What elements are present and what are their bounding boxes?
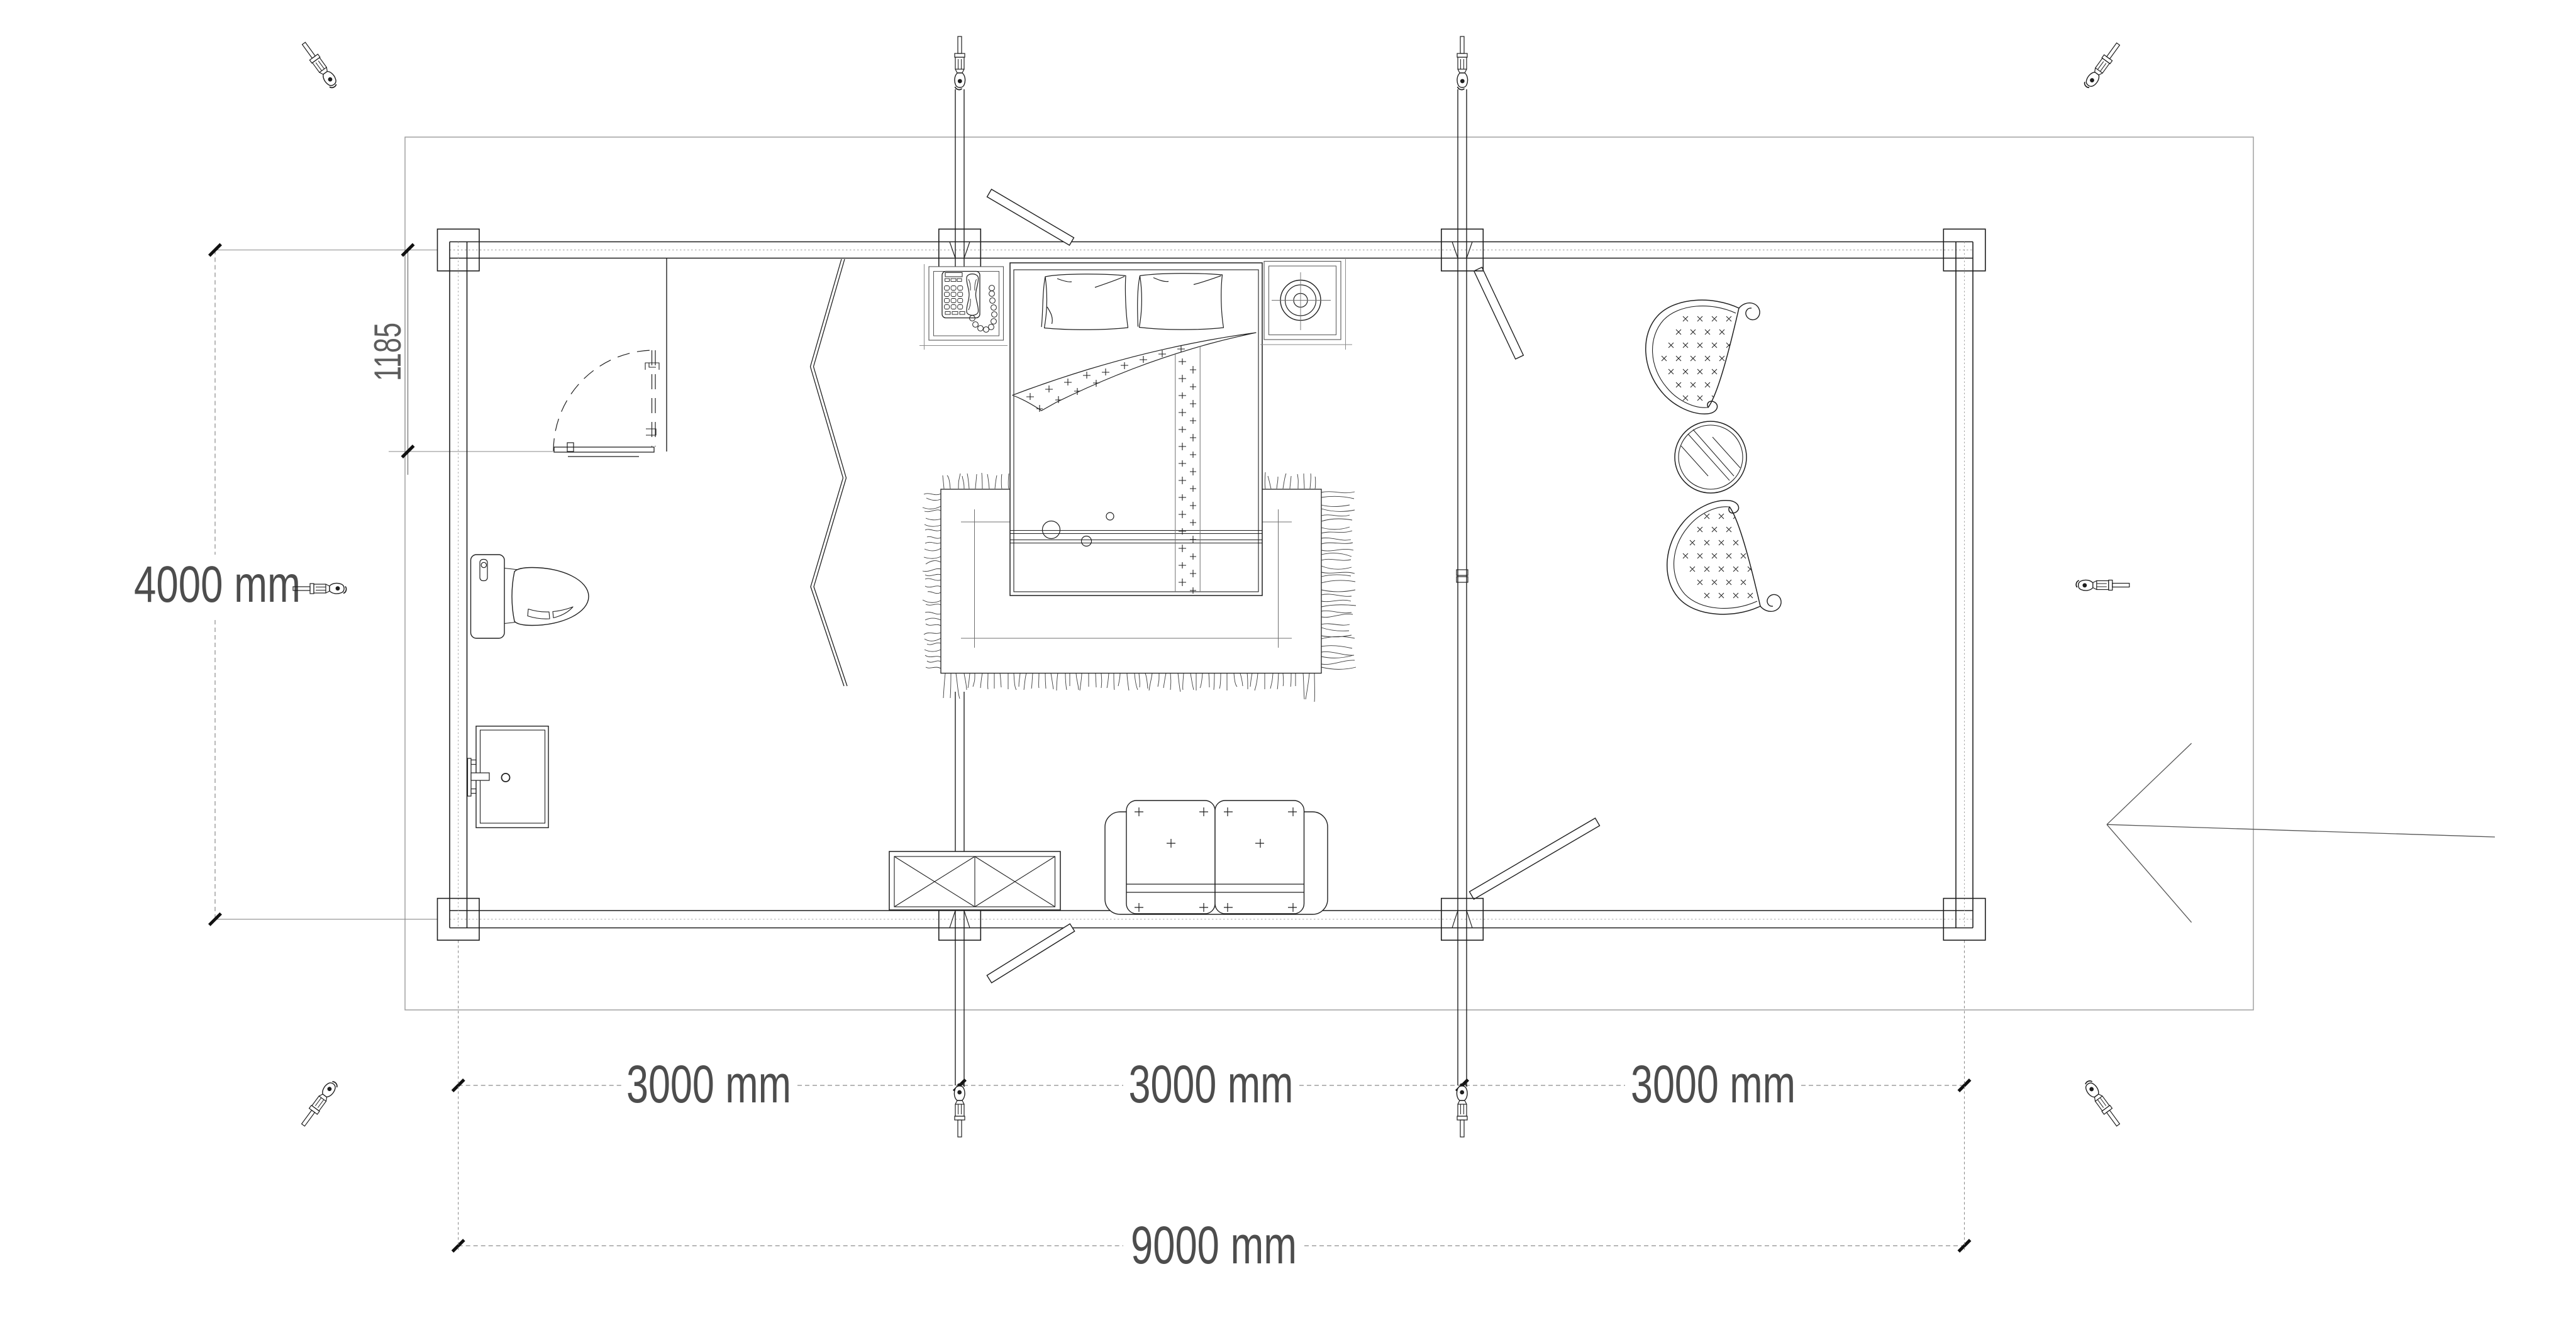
- svg-text:9000 mm: 9000 mm: [1131, 1216, 1297, 1275]
- svg-text:3000 mm: 3000 mm: [1631, 1055, 1796, 1114]
- svg-text:1185: 1185: [367, 323, 409, 381]
- svg-text:3000 mm: 3000 mm: [1129, 1055, 1294, 1114]
- svg-text:4000 mm: 4000 mm: [134, 556, 301, 613]
- svg-text:3000 mm: 3000 mm: [626, 1055, 791, 1114]
